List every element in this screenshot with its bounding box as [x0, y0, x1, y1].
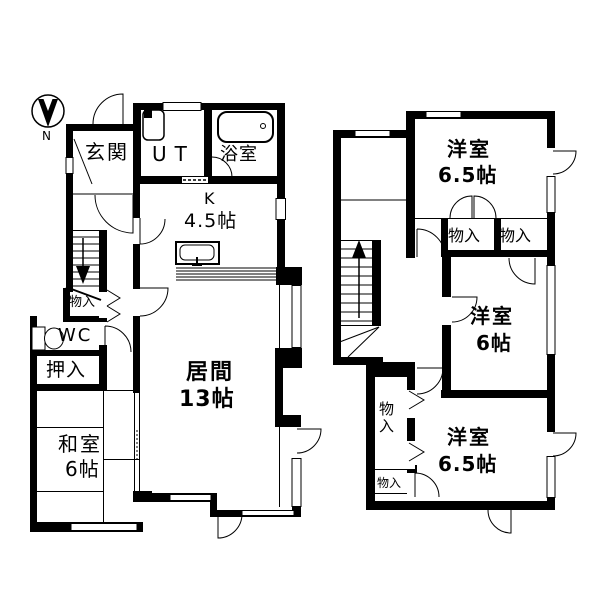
- label-utility-room: UT: [152, 144, 195, 164]
- label-closet-a: 物入: [448, 228, 480, 244]
- label-western-room-2-size: 6帖: [476, 333, 512, 353]
- label-living-room: 居間: [186, 362, 234, 384]
- label-japanese-room: 和室: [58, 434, 102, 454]
- label-closet-b: 物入: [499, 228, 531, 244]
- floorplan: N 玄関 UT 浴室 K 4.5帖 居間 13帖 物入 WC 押入 和室 6帖 …: [0, 0, 604, 604]
- label-bathroom: 浴室: [220, 146, 258, 164]
- label-oshiire-closet: 押入: [46, 361, 86, 380]
- label-western-room-2: 洋室: [470, 306, 514, 326]
- label-western-room-3: 洋室: [447, 427, 491, 447]
- label-western-room-3-size: 6.5帖: [438, 454, 497, 474]
- utility-sink-icon: [143, 110, 164, 140]
- entrance-door-arc: [93, 94, 123, 124]
- label-genkan: 玄関: [85, 142, 129, 162]
- label-closet-small: 物入: [377, 477, 401, 489]
- label-kitchen-size: 4.5帖: [184, 212, 237, 231]
- label-living-size: 13帖: [179, 389, 235, 411]
- label-japanese-room-size: 6帖: [65, 459, 100, 479]
- kitchen-counter-icon: [176, 268, 277, 280]
- dashed-opening: [182, 177, 208, 183]
- label-western-room-1: 洋室: [447, 139, 491, 159]
- label-western-room-1-size: 6.5帖: [438, 165, 497, 185]
- stairs-down-arrow-icon: [76, 266, 90, 284]
- label-closet-tall: 物入: [378, 401, 393, 435]
- kitchen-sink-icon: [176, 242, 219, 266]
- label-stair-storage: 物入: [69, 296, 95, 309]
- label-wc: WC: [58, 327, 92, 345]
- compass-north-label: N: [42, 130, 51, 142]
- compass-icon: [32, 95, 64, 127]
- label-kitchen: K: [204, 191, 215, 207]
- bathtub-icon: [218, 112, 273, 142]
